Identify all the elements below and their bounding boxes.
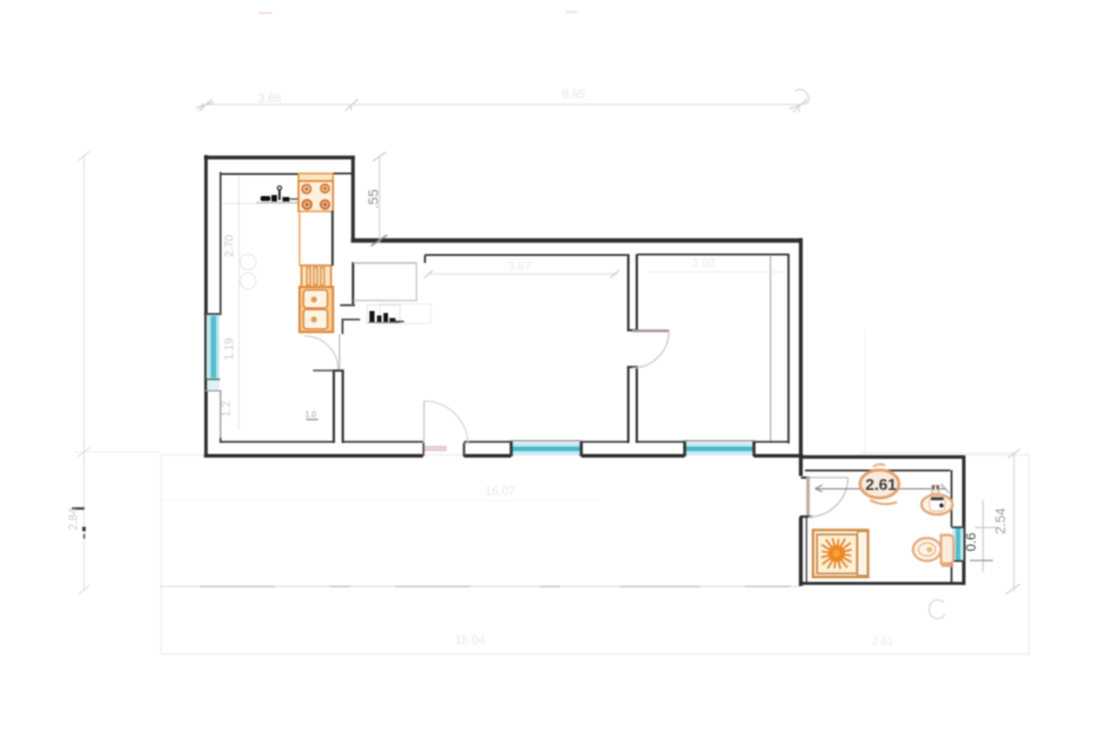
svg-text:3.67: 3.67 (508, 259, 532, 273)
svg-text:3.68: 3.68 (258, 91, 282, 105)
svg-text:15.04: 15.04 (455, 633, 485, 647)
svg-text:16.07: 16.07 (485, 484, 515, 498)
svg-text:2.70: 2.70 (224, 235, 236, 257)
svg-text:0.6: 0.6 (964, 533, 979, 552)
svg-text:1.2: 1.2 (221, 401, 233, 417)
svg-text:8.95: 8.95 (562, 87, 586, 101)
svg-text:2.61: 2.61 (872, 636, 893, 648)
svg-text:.55: .55 (365, 189, 381, 209)
svg-text:2.61: 2.61 (865, 477, 896, 494)
svg-text:2.54: 2.54 (993, 507, 1008, 534)
svg-text:1.19: 1.19 (224, 338, 236, 360)
svg-text:1.0: 1.0 (305, 410, 317, 419)
svg-text:2.84: 2.84 (68, 507, 80, 530)
svg-text:3.02: 3.02 (692, 256, 716, 270)
